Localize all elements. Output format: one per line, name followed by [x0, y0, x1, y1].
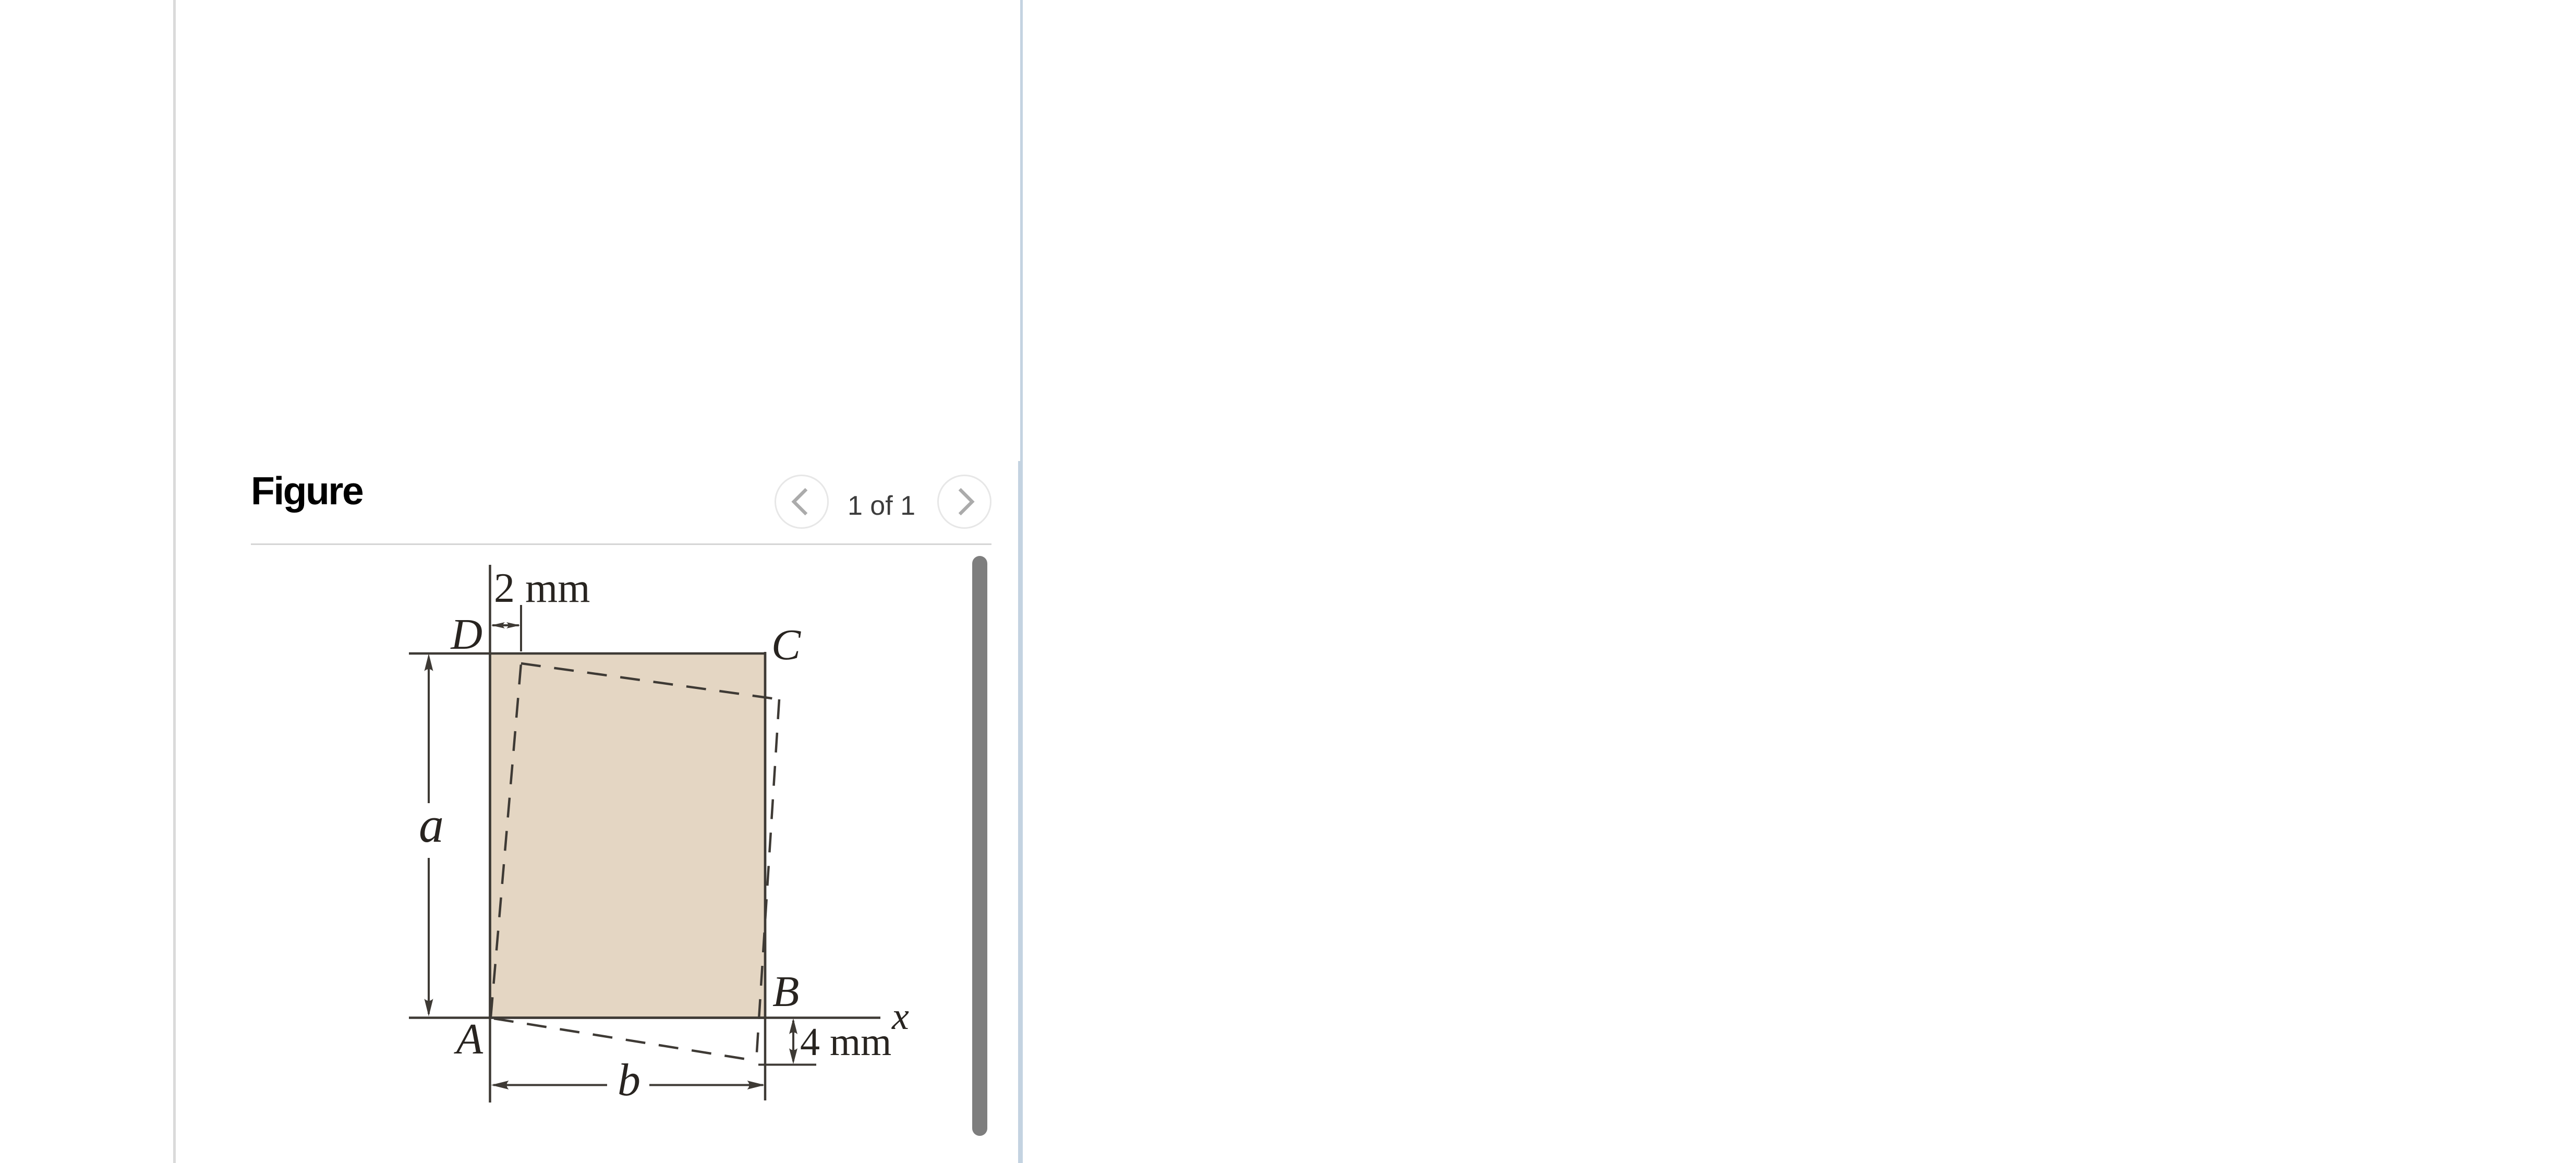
svg-text:D: D	[450, 610, 482, 659]
svg-text:C: C	[771, 621, 801, 669]
svg-text:2 mm: 2 mm	[494, 565, 590, 611]
svg-text:x: x	[891, 995, 909, 1038]
svg-text:b: b	[618, 1055, 640, 1106]
svg-text:B: B	[772, 967, 799, 1016]
svg-text:A: A	[454, 1015, 483, 1063]
svg-text:4 mm: 4 mm	[800, 1020, 891, 1064]
svg-text:a: a	[419, 797, 444, 853]
